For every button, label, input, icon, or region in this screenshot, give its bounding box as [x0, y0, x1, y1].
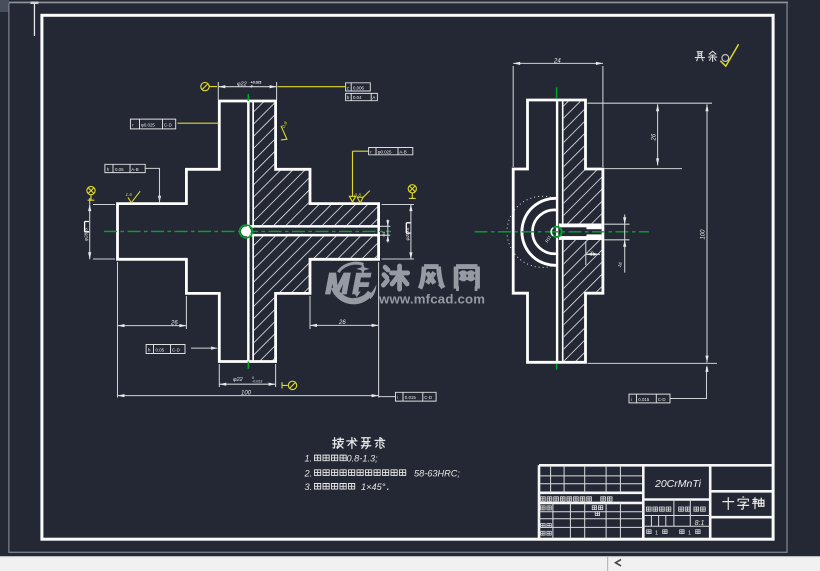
svg-text:-0.013: -0.013 — [252, 380, 262, 384]
svg-text:M: M — [326, 269, 351, 301]
svg-text:3.: 3. — [305, 482, 313, 492]
svg-text:C-D: C-D — [658, 397, 666, 402]
svg-text:1: 1 — [655, 531, 658, 537]
svg-text:26: 26 — [338, 320, 346, 326]
svg-text:φ0.025: φ0.025 — [141, 123, 155, 128]
svg-text:F: F — [353, 269, 372, 301]
svg-text:z: z — [347, 85, 349, 90]
svg-text:φ22: φ22 — [233, 377, 243, 383]
svg-text:8:1: 8:1 — [695, 520, 705, 527]
svg-text:φ4: φ4 — [381, 231, 386, 237]
svg-text:1.6: 1.6 — [126, 192, 133, 197]
svg-text:58-63HRC;: 58-63HRC; — [414, 468, 460, 478]
svg-text:0.006: 0.006 — [353, 85, 365, 90]
svg-text:26: 26 — [170, 320, 178, 326]
svg-text:C-D: C-D — [424, 395, 432, 400]
svg-text:0.04: 0.04 — [353, 95, 362, 100]
svg-text:0.8: 0.8 — [355, 192, 362, 197]
svg-text:C-D: C-D — [172, 348, 180, 353]
svg-text:A-B: A-B — [131, 167, 138, 172]
svg-text:20CrMnTi: 20CrMnTi — [654, 478, 702, 490]
svg-text:www.mfcad.com: www.mfcad.com — [378, 292, 485, 307]
svg-text:φ22: φ22 — [237, 82, 247, 88]
svg-text:C-D: C-D — [164, 123, 172, 128]
svg-text:26: 26 — [651, 133, 657, 141]
svg-text:A-B: A-B — [399, 149, 406, 154]
svg-text:0.05: 0.05 — [156, 348, 165, 353]
svg-text:A: A — [372, 95, 375, 100]
svg-text:0.8-1.3;: 0.8-1.3; — [347, 454, 379, 464]
svg-text:0: 0 — [251, 84, 253, 88]
svg-text:1.: 1. — [305, 454, 313, 464]
svg-text:0.05: 0.05 — [115, 167, 124, 172]
svg-text:0.015: 0.015 — [638, 397, 650, 402]
svg-text:0.015: 0.015 — [405, 395, 417, 400]
svg-text:100: 100 — [701, 229, 707, 240]
svg-text:i: i — [631, 397, 632, 402]
svg-text:100: 100 — [241, 390, 252, 396]
svg-text:1×45°．: 1×45°． — [361, 482, 395, 492]
svg-text:24: 24 — [553, 58, 561, 64]
svg-text:1: 1 — [688, 531, 691, 537]
svg-text:2.: 2. — [304, 468, 313, 478]
svg-text:i: i — [397, 395, 398, 400]
svg-text:φ0.025: φ0.025 — [378, 149, 392, 154]
